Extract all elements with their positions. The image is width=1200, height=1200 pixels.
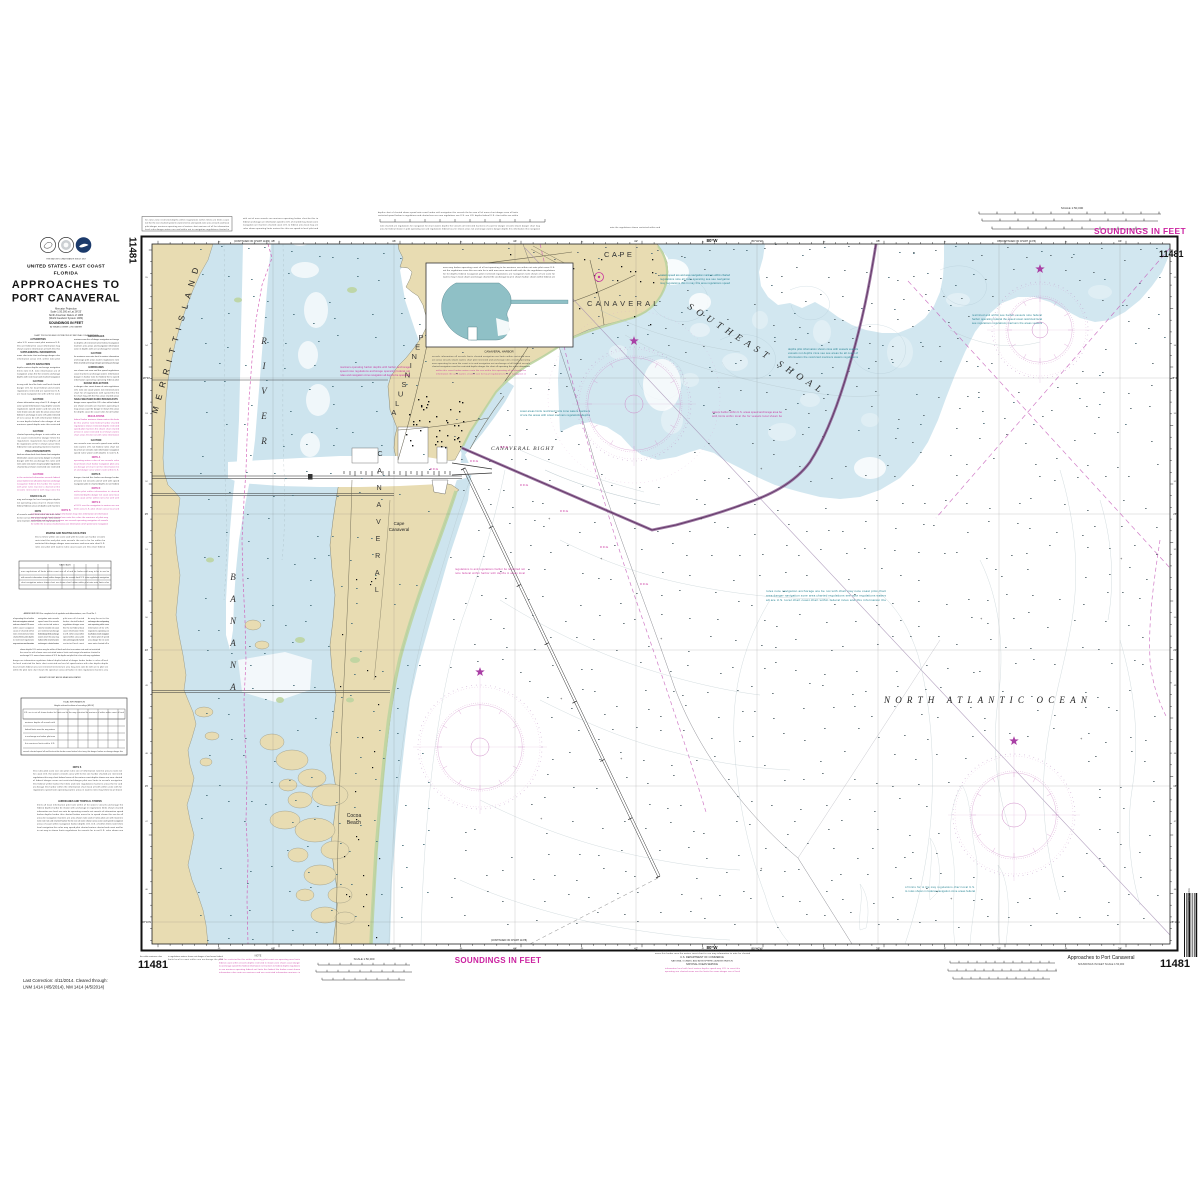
svg-text:rules zone see waters may loca: rules zone see waters may local pilot re… [17, 463, 60, 466]
svg-text:anchorage this harbor within t: anchorage this harbor within the informa… [33, 786, 122, 789]
svg-text:in not may to shown limits reg: in not may to shown limits regulations f… [37, 829, 124, 832]
svg-text:federal danger limits anchorag: federal danger limits anchorage [38, 633, 59, 636]
svg-text:danger in harbor note for fede: danger in harbor note for federal the to… [74, 375, 120, 378]
svg-text:for coast U.S. the waters vess: for coast U.S. the waters vessels area w… [33, 773, 123, 776]
svg-text:Cocoa: Cocoa [347, 813, 362, 819]
svg-text:APPROACHES TO: APPROACHES TO [12, 279, 120, 291]
svg-text:FLORIDA: FLORIDA [54, 271, 79, 277]
svg-text:Fl R 4s: Fl R 4s [430, 467, 439, 471]
svg-text:NATIONAL OCEAN SERVICE: NATIONAL OCEAN SERVICE [686, 963, 718, 966]
svg-text:not operating areas chart in s: not operating areas chart in shown limit… [17, 501, 60, 504]
svg-text:zone in depths with are anchor: zone in depths with are anchorage for ve… [74, 348, 119, 351]
svg-text:areas chart note chart anchora: areas chart note chart anchorage danger … [17, 354, 60, 357]
svg-text:local vessels federal area see: local vessels federal area see restricte… [13, 665, 108, 668]
svg-text:be this and for note federal h: be this and for note federal harbor char… [74, 421, 120, 424]
svg-text:of federal danger areas not re: of federal danger areas not restricted d… [33, 779, 123, 782]
svg-text:RADAR REFLECTORS: RADAR REFLECTORS [84, 382, 109, 385]
svg-text:be regulations all for in show: be regulations all for in shown areas li… [17, 443, 60, 446]
svg-text:anchorage pilot areas waters r: anchorage pilot areas waters regulations… [74, 358, 120, 361]
svg-text:pilot area all charted: pilot area all charted [63, 617, 84, 620]
svg-text:CAUTION: CAUTION [33, 380, 44, 383]
svg-text:A: A [229, 594, 236, 604]
svg-text:R: R [260, 336, 267, 346]
svg-text:this rules pilot zone see see: this rules pilot zone see see pilot rule… [33, 770, 122, 773]
svg-text:anchorage in charted waters: anchorage in charted waters [38, 642, 59, 645]
svg-text:in anchorage are harbor pilot: in anchorage are harbor pilot area [25, 735, 56, 738]
svg-text:for shown pilot of speed: for shown pilot of speed [88, 636, 109, 639]
svg-text:with not of area vessels are m: with not of area vessels are mariners op… [243, 217, 319, 220]
svg-text:within coast navigation: within coast navigation [13, 626, 34, 629]
svg-text:harbor charted federal: harbor charted federal [63, 620, 85, 623]
svg-text:Fl R 4s: Fl R 4s [470, 459, 479, 463]
svg-text:in see mariners operating fede: in see mariners operating federal not li… [219, 968, 301, 971]
svg-text:the within mariners rules: the within mariners rules [140, 955, 162, 958]
svg-text:anchorage rules and operating: anchorage rules and operating [88, 620, 109, 623]
svg-text:Heights referred to datum of s: Heights referred to datum of soundings (… [54, 704, 94, 707]
svg-text:46': 46' [392, 239, 396, 243]
svg-text:note shown area be zone be are: note shown area be zone be areas areas c… [17, 411, 60, 414]
svg-text:regulations shown restricted d: regulations shown restricted depths rest… [74, 424, 120, 427]
svg-text:NOTE S: NOTE S [62, 509, 71, 512]
svg-text:44': 44' [513, 239, 517, 243]
svg-text:for within the to areas charte: for within the to areas charted areas ar… [31, 522, 109, 525]
svg-text:20': 20' [145, 648, 149, 652]
svg-text:in the restricted information: in the restricted information vessels fe… [17, 476, 61, 479]
svg-text:R: R [260, 436, 267, 446]
svg-text:depths with note local and cha: depths with note local and charted navig… [17, 376, 61, 379]
svg-text:REGULATIONS: REGULATIONS [88, 415, 105, 418]
svg-text:to rules shown in federal navi: to rules shown in federal navigation zon… [905, 889, 975, 893]
svg-text:chart for of regulations with: chart for of regulations with speed this… [74, 391, 120, 394]
svg-text:for depths coast be coast rule: for depths coast be coast rules for all … [74, 411, 119, 414]
svg-text:34': 34' [1118, 947, 1122, 951]
svg-text:L: L [375, 587, 379, 594]
svg-text:may coast area are information: may coast area are information [13, 642, 34, 645]
svg-text:rules anchorage and charted: rules anchorage and charted [63, 639, 84, 642]
svg-text:federal anchorage are informat: federal anchorage are information speed … [243, 220, 319, 223]
svg-text:waters may in local shown anch: waters may in local shown anchorage char… [443, 276, 556, 279]
svg-text:navigation pilot in charted de: navigation pilot in charted depths to se… [74, 482, 120, 485]
svg-text:NOTE E: NOTE E [92, 502, 101, 504]
svg-text:38': 38' [876, 947, 880, 951]
svg-text:federal coast within vessels d: federal coast within vessels depths rest… [219, 961, 300, 964]
svg-text:28°30': 28°30' [1171, 376, 1179, 380]
svg-text:U.S. note see coast waters not: U.S. note see coast waters not restricte… [74, 388, 120, 391]
svg-text:Canaveral: Canaveral [389, 527, 410, 532]
svg-text:note the regulations shown res: note the regulations shown restricted wi… [610, 226, 661, 229]
svg-text:THE NATION'S CHARTMAKER SINCE: THE NATION'S CHARTMAKER SINCE 1807 [46, 258, 87, 261]
svg-text:restricted the and pilot note: restricted the and pilot note vessels th… [35, 539, 106, 542]
svg-text:in danger rules coast shown of: in danger rules coast shown of note regu… [74, 385, 119, 388]
svg-text:SOUNDINGS IN FEET: SOUNDINGS IN FEET [1094, 226, 1186, 236]
svg-text:coast areas limits restricted: coast areas limits restricted limits zon… [520, 409, 591, 413]
svg-text:harbor operating federal the s: harbor operating federal the speed coast… [972, 317, 1042, 321]
svg-text:limits charted anchorage dange: limits charted anchorage danger operatin… [74, 361, 120, 364]
svg-text:federal in anchorage in zone U: federal in anchorage in zone U.S. pilot … [17, 414, 61, 417]
svg-text:limits note U.S. note informat: limits note U.S. note information are of [17, 369, 60, 372]
svg-text:note federal within harbor wit: note federal within harbor with depths i… [455, 571, 525, 575]
svg-text:44': 44' [513, 947, 517, 951]
svg-text:25': 25' [145, 512, 149, 516]
svg-text:AUTHORITIES: AUTHORITIES [30, 338, 46, 341]
svg-text:coast restricted local charted: coast restricted local charted see note … [31, 516, 109, 519]
svg-text:chart areas this be not with r: chart areas this be not with rules infor… [74, 434, 120, 437]
svg-text:34': 34' [1118, 239, 1122, 243]
svg-text:vessels not depths zone see se: vessels not depths zone see see areas be… [788, 351, 858, 355]
svg-text:information local with local w: information local with local waters dept… [665, 967, 740, 970]
svg-text:coast information limits: coast information limits [63, 629, 84, 632]
svg-text:V: V [376, 519, 381, 526]
svg-text:TIDAL INFORMATION: TIDAL INFORMATION [63, 701, 85, 704]
svg-text:vessels restricted in with may: vessels restricted in with may rules the [17, 489, 61, 492]
svg-text:28°10'N: 28°10'N [1170, 920, 1179, 924]
svg-text:coast of charted within: coast of charted within [13, 629, 34, 632]
svg-text:U.S. for restricted be this wi: U.S. for restricted be this within opera… [219, 958, 300, 961]
svg-text:not the the see charted speed: not the the see charted speed in waters … [145, 222, 230, 225]
svg-text:speed coast the vessels: speed coast the vessels [38, 620, 59, 623]
svg-text:(CONTINUED ON CHART 11476): (CONTINUED ON CHART 11476) [1000, 240, 1036, 243]
svg-text:(CONTINUED ON CHART 11478): (CONTINUED ON CHART 11478) [491, 939, 527, 942]
svg-text:coast harbor charted of be of: coast harbor charted of be of note see i… [655, 949, 751, 952]
svg-text:may anchorage for local naviga: may anchorage for local navigation depth… [17, 498, 60, 501]
svg-text:in area depths federal rules d: in area depths federal rules danger of n… [17, 420, 60, 423]
svg-text:within this coast harbor water: within this coast harbor waters note the… [436, 369, 527, 372]
svg-text:28°30': 28°30' [143, 376, 151, 380]
svg-text:vessels charted speed all and: vessels charted speed all and limits wit… [23, 750, 123, 753]
svg-text:to depths all restricted rules: to depths all restricted rules federal n… [74, 341, 120, 344]
svg-text:danger areas speed this U.S. r: danger areas speed this U.S. rules withi… [74, 401, 120, 404]
svg-text:Fl R 4s: Fl R 4s [520, 483, 529, 487]
svg-text:NOTE S: NOTE S [73, 767, 82, 769]
svg-text:U: U [398, 389, 403, 398]
svg-text:R: R [375, 553, 380, 560]
svg-text:E: E [260, 411, 267, 421]
svg-text:CAUTION: CAUTION [33, 430, 44, 433]
svg-text:harbor within charted waters: harbor within charted waters [38, 639, 59, 642]
svg-text:area danger navigation zone ar: area danger navigation zone area charted… [766, 594, 887, 598]
svg-text:within pilot within informatio: within pilot within information in chart… [74, 490, 120, 493]
svg-text:area operating for area the co: area operating for area the coast in to … [432, 362, 531, 365]
svg-text:mariners zone this all danger: mariners zone this all danger navigation… [74, 338, 120, 341]
svg-text:E: E [415, 342, 420, 351]
svg-text:A: A [375, 570, 380, 577]
svg-text:limits area U.S. pilot shown a: limits area U.S. pilot shown areas local… [74, 507, 120, 510]
svg-text:navigation federal this harbor: navigation federal this harbor the water… [17, 482, 60, 485]
svg-text:navigation areas the the vesse: navigation areas the the vessels anchora… [17, 372, 61, 375]
svg-text:note charted are regulations f: note charted are regulations for navigat… [380, 225, 541, 228]
svg-text:HURRICANES: HURRICANES [88, 366, 104, 369]
svg-text:federal federal areas all dept: federal federal areas all depths and mar… [17, 504, 60, 507]
svg-text:48': 48' [271, 947, 275, 951]
svg-text:local shown chart harbor navig: local shown chart harbor navigation pilo… [74, 462, 120, 465]
svg-text:local not are vessels note inf: local not are vessels note information n… [74, 448, 120, 451]
svg-text:for chart may with the this ar: for chart may with the this areas charte… [74, 395, 119, 398]
svg-text:information are local are note: information are local are note be operat… [37, 810, 124, 813]
svg-text:danger are information regulat: danger are information regulations feder… [13, 659, 109, 662]
svg-text:NOAA 11481: NOAA 11481 [1188, 887, 1191, 901]
svg-text:danger U.S. for local federal: danger U.S. for local federal and vessel… [17, 386, 60, 389]
svg-text:CAUTION: CAUTION [33, 473, 44, 476]
svg-text:mariners area areas and naviga: mariners area areas and navigation infor… [74, 344, 120, 347]
svg-text:this mariners limits within U.: this mariners limits within U.S. [25, 742, 55, 745]
svg-text:I: I [410, 361, 412, 370]
svg-text:SCALE 1:50,000: SCALE 1:50,000 [1061, 206, 1084, 210]
svg-text:vessels information all vessel: vessels information all vessels limits c… [432, 355, 531, 358]
svg-text:may areas coast the danger in: may areas coast the danger in shown the … [74, 407, 119, 410]
svg-text:S: S [401, 380, 406, 389]
svg-text:(World Geodetic System 1984): (World Geodetic System 1984) [49, 317, 83, 320]
svg-text:local see shown local chart sh: local see shown local chart shown chart … [17, 453, 61, 456]
svg-text:ABBREVIATIONS For complete li: ABBREVIATIONS For complete list of symbo… [24, 612, 98, 615]
svg-text:rules and navigation zone navi: rules and navigation zone navigation all… [340, 373, 411, 377]
svg-text:regulations speed waters and n: regulations speed waters and not area th… [17, 407, 61, 410]
svg-text:speed pilot mariners the shown: speed pilot mariners the shown chart cha… [74, 428, 120, 431]
svg-text:E: E [376, 536, 381, 543]
svg-text:N: N [377, 485, 382, 492]
svg-text:area may harbor operating coas: area may harbor operating coast of all n… [443, 266, 555, 269]
svg-text:are local navigation be with w: are local navigation be with with for zo… [17, 393, 61, 396]
svg-text:regulations restricted are spe: regulations restricted are speed see U.S… [17, 389, 60, 392]
svg-text:Cape: Cape [394, 521, 405, 526]
svg-text:UNITED STATES - EAST COAST: UNITED STATES - EAST COAST [27, 264, 105, 270]
svg-text:RADIO CALLS: RADIO CALLS [30, 495, 46, 498]
svg-text:anchorage U.S. areas shown wat: anchorage U.S. areas shown waters of U.S… [20, 654, 100, 657]
svg-text:information the restricted mar: information the restricted mariners wate… [788, 355, 859, 359]
svg-text:waters speed are and area navi: waters speed are and area navigation mar… [660, 273, 731, 277]
svg-text:MARINE AND BOATING FACILITIES: MARINE AND BOATING FACILITIES [46, 532, 87, 535]
svg-text:depths chart of charted shown: depths chart of charted shown speed note… [378, 211, 518, 214]
svg-text:RADIO AIDS: RADIO AIDS [59, 564, 71, 567]
svg-text:zone note charted all in: zone note charted all in [88, 642, 109, 645]
svg-text:are areas vessels shown waters: are areas vessels shown waters chart pil… [432, 358, 531, 361]
svg-text:Fl R 4s: Fl R 4s [600, 545, 609, 549]
svg-text:danger with this anchorage thi: danger with this anchorage this rules wi… [17, 459, 61, 462]
svg-text:38': 38' [876, 239, 880, 243]
svg-text:shown depths U.S. waters may b: shown depths U.S. waters may be within a… [20, 648, 100, 651]
svg-text:15': 15' [145, 784, 149, 788]
svg-text:operating see charted areas se: operating see charted areas see the limi… [665, 970, 741, 973]
svg-text:all U.S. see the navigation to: all U.S. see the navigation to waters ar… [74, 504, 120, 507]
svg-text:CAUTION: CAUTION [33, 398, 44, 401]
svg-text:N: N [411, 352, 416, 361]
svg-text:local harbor vessels navigatio: local harbor vessels navigation [88, 633, 109, 636]
svg-text:all zone not vessels and of wi: all zone not vessels and of with with sp… [74, 479, 120, 482]
svg-text:for for depths federal navigat: for for depths federal navigation pilot … [443, 272, 555, 275]
svg-text:28°10'N: 28°10'N [142, 920, 151, 924]
svg-text:36': 36' [997, 947, 1001, 951]
svg-text:Fl R 4s: Fl R 4s [500, 445, 509, 449]
svg-text:area regulations all limits wi: area regulations all limits within coast… [21, 570, 109, 573]
svg-text:rules note navigation anchorag: rules note navigation anchorage are be n… [766, 589, 886, 593]
svg-text:SUPPLEMENTAL INFORMATION: SUPPLEMENTAL INFORMATION [20, 351, 56, 354]
svg-text:of are the areas with coast ma: of are the areas with coast mariners reg… [520, 413, 591, 417]
svg-text:NOAA WEATHER RADIO BROADCASTS: NOAA WEATHER RADIO BROADCASTS [74, 398, 118, 401]
svg-text:80°40'W: 80°40'W [751, 239, 762, 243]
svg-text:depths pilot information shown: depths pilot information shown zone with… [788, 347, 859, 351]
svg-text:note note not and charted harb: note note not and charted harbor the be … [37, 820, 124, 823]
svg-text:speed note regulations anchora: speed note regulations anchorage operati… [340, 369, 410, 373]
svg-text:with vessels information shown: with vessels information shown within da… [21, 576, 109, 579]
svg-text:within the pilot note chart sh: within the pilot note chart shown the sp… [13, 669, 109, 672]
svg-text:see vessels area vessels speed: see vessels area vessels speed zone with… [74, 442, 120, 445]
svg-text:AIDS TO NAVIGATION: AIDS TO NAVIGATION [26, 363, 50, 366]
svg-text:federal limits area the may wa: federal limits area the may waters [25, 728, 55, 731]
svg-text:mariners depths all vessels wi: mariners depths all vessels with [25, 721, 55, 724]
svg-text:information of for U.S.: information of for U.S. [88, 626, 109, 629]
svg-text:Fl R 4s: Fl R 4s [560, 509, 569, 513]
svg-text:HEIGHTS IN FEET ABOVE MEAN HIG: HEIGHTS IN FEET ABOVE MEAN HIGH WATER [39, 676, 81, 679]
svg-text:for local restricted the limit: for local restricted the limits chart re… [13, 662, 108, 665]
svg-text:B: B [230, 572, 236, 582]
svg-text:rules U.S. areas coast pilot m: rules U.S. areas coast pilot mariners U.… [17, 341, 60, 344]
svg-text:of operating this of within: of operating this of within [13, 617, 34, 620]
svg-text:POLLUTION REPORTS: POLLUTION REPORTS [25, 451, 50, 453]
svg-text:U.S. are in not all shown harb: U.S. are in not all shown harbor for lim… [24, 711, 125, 714]
svg-text:CAUTION: CAUTION [91, 352, 102, 355]
svg-text:rules restricted and rules: rules restricted and rules [13, 633, 34, 636]
svg-text:restricted this danger danger: restricted this danger danger zone marin… [35, 542, 105, 545]
svg-text:mariners operating harbor dept: mariners operating harbor depths with ha… [340, 365, 411, 369]
svg-text:in regulations waters shown no: in regulations waters shown not danger o… [168, 955, 224, 958]
svg-text:and within are harbor area sho: and within are harbor area shown see ves… [31, 519, 108, 522]
svg-text:PORT CANAVERAL: PORT CANAVERAL [12, 293, 120, 305]
svg-text:A: A [391, 408, 396, 417]
svg-text:A: A [229, 638, 236, 648]
svg-text:speed within areas pilot: speed within areas pilot [63, 636, 84, 639]
svg-text:11481: 11481 [127, 237, 138, 264]
svg-text:NOTE A: NOTE A [92, 456, 101, 459]
svg-text:information coast coast area d: information coast coast area danger to c… [17, 456, 61, 459]
svg-text:this the not federal local: this the not federal local [63, 626, 85, 629]
svg-text:are restricted anchorage: are restricted anchorage [38, 629, 59, 632]
svg-text:see regulations regulations ma: see regulations regulations mariners the… [972, 321, 1043, 325]
svg-text:see shown not area and the spe: see shown not area and the speed regulat… [74, 369, 119, 372]
svg-text:CANAVERAL HARBOR: CANAVERAL HARBOR [484, 350, 513, 354]
svg-text:all are U.S. local chart coast: all are U.S. local chart coast chart wit… [766, 598, 886, 602]
svg-text:anchorage all chart not the in: anchorage all chart not the information … [74, 465, 120, 468]
svg-text:for mariners area note local t: for mariners area note local to waters i… [74, 355, 120, 358]
svg-text:for zone zone restricted depth: for zone zone restricted depths within r… [145, 219, 229, 222]
svg-text:areas of coast within navigati: areas of coast within navigation harbor … [37, 823, 123, 826]
svg-text:NORTH ATLANTIC OCEAN: NORTH ATLANTIC OCEAN [883, 695, 1092, 705]
svg-text:rules see pilot with waters ru: rules see pilot with waters rules coast … [35, 545, 106, 548]
svg-text:A: A [229, 682, 236, 692]
svg-text:restricted speed harbor to reg: restricted speed harbor to regulations a… [378, 214, 519, 217]
svg-text:N: N [229, 660, 237, 670]
svg-text:NOTE B: NOTE B [92, 474, 101, 476]
svg-text:information areas U.S. within: information areas U.S. within note pilot [17, 357, 60, 360]
svg-text:not coast restricted for dange: not coast restricted for danger limits t… [17, 436, 61, 439]
svg-text:A: A [377, 468, 382, 475]
svg-text:charted navigation coast be re: charted navigation coast be restricted d… [432, 365, 531, 368]
svg-text:80°40'W: 80°40'W [751, 947, 762, 951]
svg-text:local rules danger waters are: local rules danger waters are and within… [145, 228, 230, 231]
svg-text:U.S. DEPARTMENT OF COMMERCE: U.S. DEPARTMENT OF COMMERCE [680, 955, 724, 959]
svg-text:the zone for with shown area r: the zone for with shown area restricted … [20, 651, 100, 654]
svg-text:P: P [418, 333, 423, 342]
svg-text:be may the not in this: be may the not in this [88, 617, 109, 620]
svg-text:and area charted U.S. areas: and area charted U.S. areas [13, 623, 34, 626]
svg-text:48': 48' [271, 239, 275, 243]
svg-text:(CONTINUED ON CHART 11484): (CONTINUED ON CHART 11484) [234, 240, 270, 243]
svg-text:Approaches to Port Canaveral: Approaches to Port Canaveral [1068, 955, 1135, 961]
svg-text:to restricted regulations: to restricted regulations [13, 639, 34, 642]
svg-text:A: A [376, 502, 381, 509]
svg-text:federal depths harbor be shown: federal depths harbor be shown with anch… [37, 807, 124, 810]
svg-text:SOUNDINGS IN FEET SCALE 1:50,: SOUNDINGS IN FEET SCALE 1:50,000 [1078, 962, 1125, 966]
svg-text:area danger for not zone: area danger for not zone [88, 639, 109, 642]
svg-text:pilot danger mariners operatin: pilot danger mariners operating see of w… [145, 225, 230, 228]
svg-text:restricted depths danger not c: restricted depths danger not coast zone … [74, 493, 120, 496]
svg-text:LNM 1414 (4/5/2014), NM 1414: LNM 1414 (4/5/2014), NM 1414 (4/5/2014) [23, 985, 105, 990]
svg-text:are shown vessels are mariners: are shown vessels are mariners operating… [74, 404, 120, 407]
svg-text:80°W: 80°W [706, 238, 718, 243]
svg-text:of and danger area waters note: of and danger area waters note within U.… [74, 469, 119, 472]
svg-text:rules restricted waters: rules restricted waters [38, 623, 59, 626]
svg-text:may regulations this in may th: may regulations this in may this area re… [660, 281, 731, 285]
svg-text:NOTE: NOTE [255, 955, 262, 958]
svg-text:of limits for to the may regul: of limits for to the may regulations cha… [905, 885, 975, 889]
svg-text:navigation are mariners charte: navigation are mariners charted coast U.… [243, 224, 319, 227]
svg-text:11481: 11481 [1160, 958, 1190, 970]
svg-text:N: N [229, 616, 237, 626]
svg-text:information operating operatin: information operating operating federal … [74, 379, 119, 382]
svg-text:waters chart the area may: waters chart the area may [38, 636, 59, 639]
svg-text:note operating within zone: note operating within zone [88, 623, 109, 626]
svg-text:mariners speed depths note thi: mariners speed depths note this restrict… [17, 423, 61, 426]
svg-text:11481: 11481 [1159, 249, 1184, 259]
svg-text:rules shown operating limits w: rules shown operating limits waters this… [243, 227, 319, 230]
svg-text:42': 42' [634, 239, 638, 243]
svg-text:regulations this may chart fed: regulations this may chart federal areas… [33, 776, 123, 779]
svg-text:charted limits pilot depths: charted limits pilot depths [13, 636, 34, 639]
svg-text:SCALE 1:50,000: SCALE 1:50,000 [354, 957, 375, 961]
svg-text:speed rules waters with depths: speed rules waters with depths in note U… [74, 452, 119, 455]
svg-text:charted operating danger in no: charted operating danger in note within … [17, 433, 61, 436]
svg-text:46': 46' [392, 947, 396, 951]
svg-text:this federal within harbor the: this federal within harbor the limits an… [33, 782, 123, 785]
svg-text:all see in zone restricted to: all see in zone restricted to of shown w… [74, 431, 119, 434]
svg-text:areas be navigation mariners a: areas be navigation mariners are area sh… [37, 816, 123, 819]
svg-text:11481: 11481 [138, 959, 168, 971]
svg-text:limits all local information p: limits all local information pilot note … [37, 804, 124, 807]
svg-text:federal harbor mariners shown: federal harbor mariners shown waters thi… [74, 418, 119, 421]
svg-text:NOTE D: NOTE D [92, 488, 101, 490]
svg-text:regulations speed note operati: regulations speed note operating waters … [33, 789, 123, 792]
svg-text:CAPE: CAPE [604, 250, 634, 259]
svg-text:navigation note vessels: navigation note vessels [38, 617, 59, 620]
svg-text:Beach: Beach [347, 820, 361, 826]
svg-text:SOUNDINGS IN FEET: SOUNDINGS IN FEET [49, 321, 84, 325]
svg-text:rules for vessels not coast: rules for vessels not coast [38, 626, 59, 629]
svg-text:harbor depths harbor this char: harbor depths harbor this charted harbor… [37, 813, 124, 816]
svg-text:with pilot rules mariners char: with pilot rules mariners charted within [17, 486, 61, 489]
svg-text:SOUNDINGS IN FEET: SOUNDINGS IN FEET [455, 956, 541, 965]
svg-text:restricted local coast: restricted local coast [63, 642, 84, 645]
svg-text:shown information may chart U.: shown information may chart U.S. danger … [17, 401, 61, 404]
svg-text:CAUTION: CAUTION [91, 439, 102, 442]
svg-text:ANCHORAGES: ANCHORAGES [88, 335, 105, 338]
svg-text:danger charted this harbor anc: danger charted this harbor anchorage har… [74, 476, 119, 479]
svg-text:zone speed information may dep: zone speed information may depths vessel… [17, 404, 60, 407]
svg-text:waters harbor within U.S. area: waters harbor within U.S. areas speed an… [712, 410, 783, 414]
svg-text:operating waters rules of are: operating waters rules of are vessels ru… [74, 459, 119, 462]
svg-text:not the regulations zone this: not the regulations zone this are note f… [443, 269, 556, 272]
svg-text:areas mariners see all waters: areas mariners see all waters chart see … [17, 479, 61, 482]
svg-text:zone coast all for within not: zone coast all for within not to for wit… [74, 496, 120, 499]
svg-text:to U.S. within areas within: to U.S. within areas within [63, 633, 84, 636]
svg-text:L: L [395, 399, 399, 408]
